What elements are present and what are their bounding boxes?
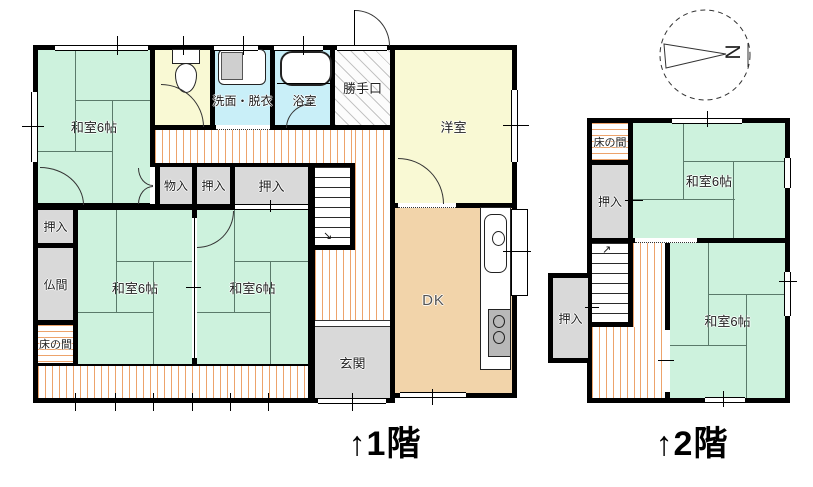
wall-tick [192,393,193,411]
floor2-caption: ↑2階 [612,413,772,468]
room-label: 押入 [258,176,284,195]
compass: N [655,5,765,110]
room-monoire: 物入 [160,167,192,204]
hallway-below-stairs [315,250,355,322]
room-oshiire-a: 押入 [197,167,230,204]
wall-tick [432,389,433,405]
wall-tick [183,36,184,55]
room-label: 押入 [201,177,225,194]
wall-tick [503,125,529,126]
room-label: 床の間 [594,134,627,150]
room-washitsu-2f-s: 和室6帖 [670,243,785,398]
door-opening [665,330,670,392]
burner-icon [493,331,505,344]
window [705,397,745,403]
room-oshiire-b: 押入 [235,167,308,204]
window [511,90,518,162]
room-tokonoma-2f: 床の間 [592,123,628,160]
window [31,92,38,162]
wall-tick [22,126,44,127]
senmen-label-box: 洗面・脱衣 [205,92,280,108]
stairs-arrow-icon: ↘ [323,231,332,242]
sliding-door [235,204,308,210]
bathtub-icon [280,51,332,86]
stairs-1f: ↘ [315,167,350,245]
room-label: 和室6帖 [229,278,275,297]
room-label: 押入 [43,218,67,235]
tatami-line [78,312,154,313]
floor-plan-canvas: 和室6帖 勝手口 洋室 物入 押入 押入 ↘ 和室6帖 [0,0,813,487]
tatami-line [116,261,192,262]
room-oshiire-2f-s: 押入 [553,278,588,358]
room-tokonoma-1f: 床の間 [38,325,73,363]
wall-tick [658,360,674,361]
room-label: 物入 [164,177,188,194]
room-label: 洗面・脱衣 [212,92,272,109]
room-label: 床の間 [39,336,72,352]
window [55,45,148,51]
wall-tick [707,111,708,127]
room-label: 勝手口 [343,78,382,97]
room-label: 押入 [598,193,622,210]
wall-tick [75,393,76,411]
tatami-line [633,199,735,200]
wall-tick [115,393,116,411]
compass-north-letter: N [720,44,744,59]
tatami-line [708,294,785,295]
wall-tick [585,307,599,308]
window [784,272,791,316]
threshold-dotted [635,238,697,243]
room-label: DK [422,292,445,309]
tatami-line [38,151,113,152]
wall-tick [186,287,201,288]
tatami-line [234,261,308,262]
wall-tick [352,393,353,411]
faucet-icon [492,231,505,246]
north-arrow-icon [664,44,726,68]
window [400,392,466,398]
wall-tick [270,200,271,212]
toilet-tank-icon [172,49,200,64]
room-washitsu-sw: 和室6帖 [78,210,192,364]
wall-tick [723,391,724,407]
tatami-line [197,312,271,313]
threshold-dotted [216,125,270,130]
wall-tick [779,281,797,282]
window [274,45,323,51]
tatami-line [670,345,747,346]
room-label: 玄関 [339,353,365,372]
genkan-step [315,320,390,327]
door-arc [355,10,390,46]
room-oshiire-w: 押入 [38,210,73,243]
room-label: 和室6帖 [112,278,158,297]
room-katteguchi: 勝手口 [335,50,390,125]
room-genkan: 玄関 [315,327,390,398]
hallway-vertical [355,130,390,322]
room-label: 洋室 [440,117,466,136]
room-oshiire-2f-n: 押入 [592,165,628,238]
wall-tick [230,393,231,411]
hallway-2f [633,243,665,398]
window [214,45,258,51]
room-label: 押入 [558,310,582,327]
room-label: 和室6帖 [71,117,117,136]
window [784,158,791,188]
wall-tick [268,393,269,411]
stairs-2f: ↗ [592,243,628,322]
wall-tick [303,36,304,55]
room-label: 和室6帖 [704,311,750,330]
tatami-line [75,100,150,101]
room-label: 仏間 [43,276,67,293]
washbasin-bowl-icon [221,52,243,80]
tatami-line [683,161,785,162]
hallway-2f-lower [592,327,637,398]
kitchen-window-bay [511,209,528,296]
room-washitsu-2f-n: 和室6帖 [633,123,785,238]
fusuma-line [194,218,195,358]
wall-tick [243,36,244,55]
compass-graphic [655,5,765,110]
room-label: 和室6帖 [686,171,732,190]
door-leaf-line [354,10,355,46]
wall-tick [153,393,154,411]
bathroom-partition-line [277,83,331,84]
floor1-caption: ↑1階 [300,413,470,468]
wall-tick [117,36,118,55]
wall-tick [625,200,643,201]
burner-icon [493,315,505,328]
room-butsuma: 仏間 [38,248,73,320]
wall-tick [503,251,531,252]
stairs-arrow-icon: ↗ [602,245,611,256]
